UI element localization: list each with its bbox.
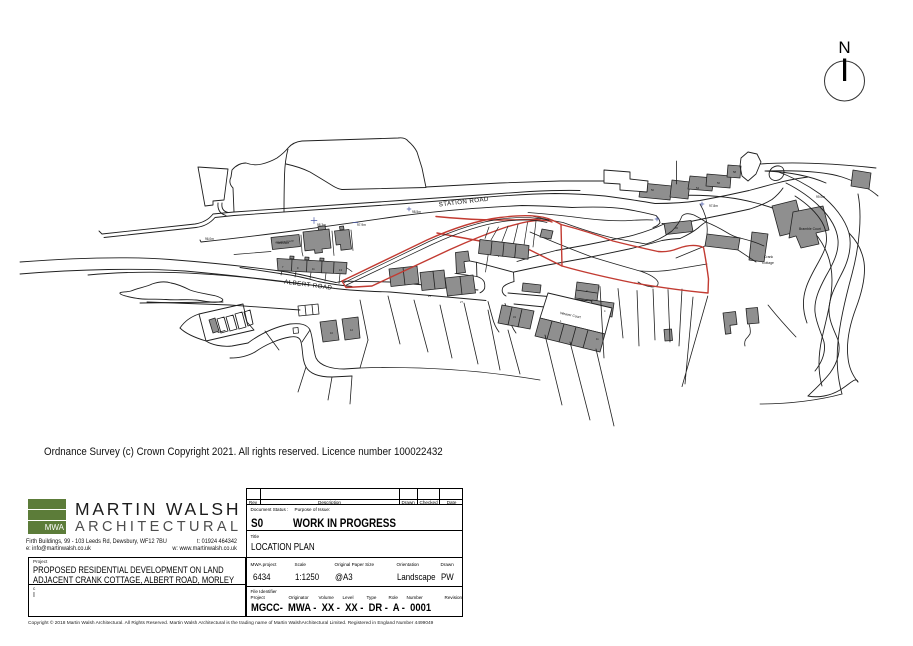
svg-text:96.0m: 96.0m — [205, 237, 214, 241]
svg-text:Bramble Court: Bramble Court — [799, 227, 821, 231]
svg-text:Yorkshire: Yorkshire — [276, 241, 289, 245]
svg-text:97.8m: 97.8m — [709, 204, 718, 208]
svg-text:98.3m: 98.3m — [317, 223, 326, 227]
svg-text:99.0m: 99.0m — [816, 195, 825, 199]
svg-text:97.9m: 97.9m — [357, 223, 366, 227]
svg-text:27: 27 — [460, 300, 463, 304]
svg-text:Cottage: Cottage — [762, 261, 774, 265]
svg-text:Crank: Crank — [764, 255, 773, 259]
svg-text:98.5m: 98.5m — [412, 210, 421, 214]
